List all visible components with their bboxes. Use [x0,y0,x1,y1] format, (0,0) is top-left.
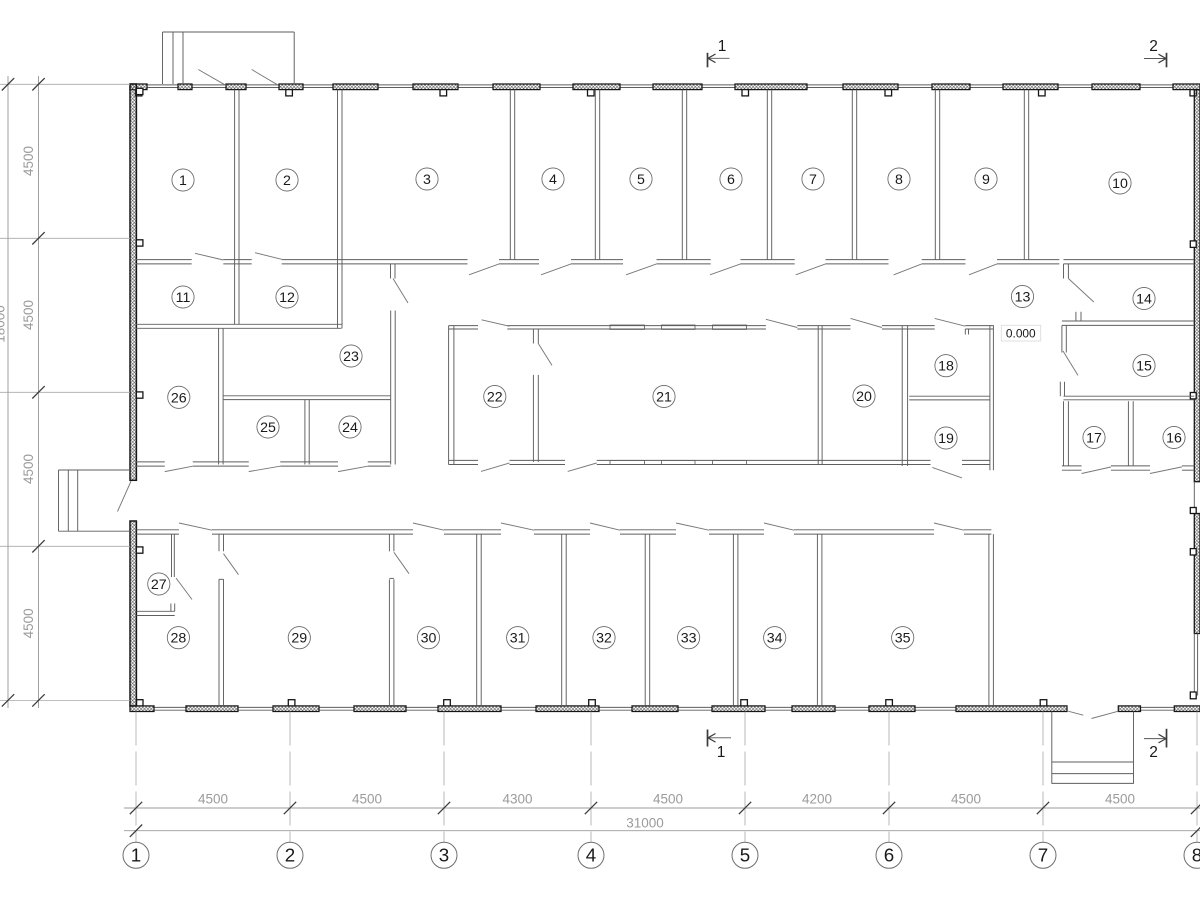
svg-text:25: 25 [260,420,276,436]
svg-text:17: 17 [1086,431,1102,447]
svg-text:31000: 31000 [626,816,664,831]
svg-text:4500: 4500 [21,608,36,638]
svg-text:29: 29 [291,631,307,647]
svg-text:10: 10 [1112,176,1128,192]
svg-text:4500: 4500 [198,792,228,807]
svg-text:30: 30 [421,631,437,647]
svg-text:14: 14 [1136,292,1152,308]
svg-text:1: 1 [179,173,187,189]
svg-text:4300: 4300 [502,792,532,807]
svg-text:18000: 18000 [0,305,8,343]
svg-text:4: 4 [586,845,596,866]
svg-text:4500: 4500 [352,792,382,807]
svg-text:2: 2 [1149,38,1158,55]
svg-text:24: 24 [342,420,358,436]
svg-text:2: 2 [283,173,291,189]
svg-text:11: 11 [176,290,191,306]
svg-text:4500: 4500 [1105,792,1135,807]
svg-text:0.000: 0.000 [1006,327,1036,341]
svg-text:15: 15 [1136,359,1152,375]
svg-text:23: 23 [343,349,359,365]
svg-text:3: 3 [423,172,431,188]
svg-text:2: 2 [1149,744,1158,761]
svg-text:4500: 4500 [21,146,36,176]
svg-text:4500: 4500 [653,792,683,807]
svg-text:5: 5 [637,172,645,188]
svg-text:18: 18 [938,359,954,375]
svg-text:4500: 4500 [951,792,981,807]
svg-text:4500: 4500 [21,454,36,484]
svg-text:4500: 4500 [21,300,36,330]
svg-text:32: 32 [596,631,612,647]
svg-text:1: 1 [131,845,141,866]
svg-text:19: 19 [938,431,954,447]
svg-text:35: 35 [895,631,911,647]
svg-text:1: 1 [718,38,727,55]
svg-text:3: 3 [439,845,449,866]
svg-text:4200: 4200 [802,792,832,807]
svg-text:31: 31 [510,631,526,647]
svg-text:34: 34 [767,631,783,647]
svg-text:6: 6 [727,172,735,188]
svg-text:7: 7 [809,172,817,188]
svg-text:5: 5 [740,845,750,866]
svg-text:12: 12 [279,290,295,306]
svg-text:13: 13 [1015,290,1031,306]
svg-text:1: 1 [717,744,726,761]
svg-text:22: 22 [487,390,503,406]
svg-text:8: 8 [895,172,903,188]
svg-text:20: 20 [856,389,872,405]
svg-text:27: 27 [151,577,167,593]
svg-text:33: 33 [681,631,697,647]
svg-text:6: 6 [884,845,894,866]
svg-text:16: 16 [1166,431,1182,447]
svg-text:4: 4 [549,172,557,188]
svg-text:7: 7 [1038,845,1048,866]
svg-text:9: 9 [982,172,990,188]
svg-text:2: 2 [285,845,295,866]
svg-text:26: 26 [171,390,187,406]
svg-text:28: 28 [171,631,187,647]
svg-text:21: 21 [656,390,672,406]
svg-text:8: 8 [1192,845,1200,866]
